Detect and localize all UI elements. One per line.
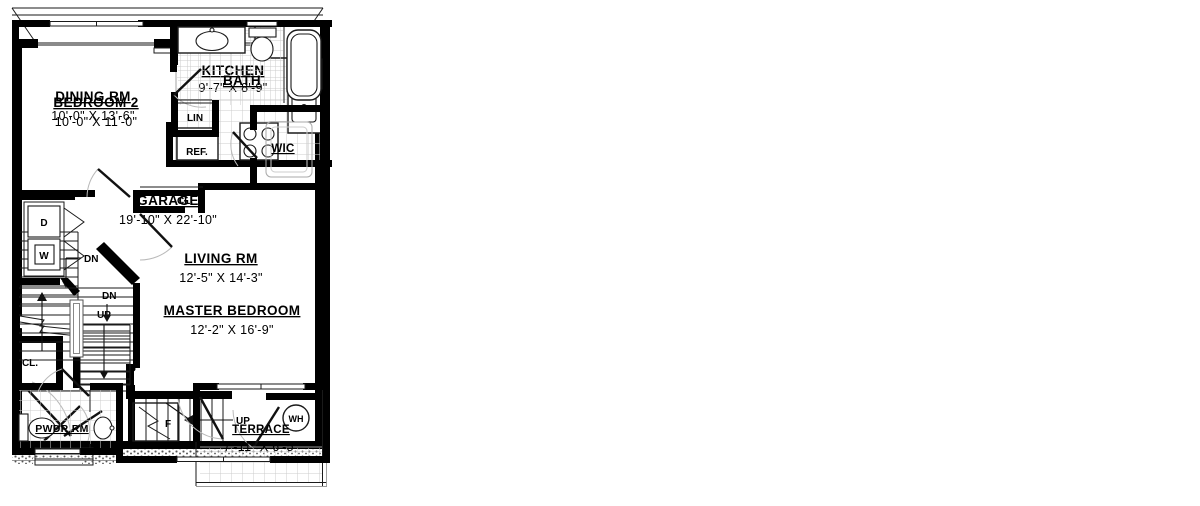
floor-plan-sheet: UP WH GARAGE 19'-10" X 22'-10" [0, 0, 1200, 506]
room-label-pwdr: PWDR RM [35, 423, 88, 435]
room-label-bedroom2: BEDROOM 2 [53, 95, 138, 110]
bath-vanity-sink [178, 27, 245, 53]
closet-label: CL. [177, 196, 193, 207]
bathtub [284, 27, 321, 103]
room-dim-bedroom2: 10'-0" X 11'-0" [55, 115, 138, 129]
upper-level-plan: LIN WIC CL. D W [0, 0, 345, 506]
stairs: DN [19, 288, 133, 360]
room-label-bath: BATH [223, 73, 261, 88]
washer-label: W [39, 251, 49, 262]
dn-label: DN [102, 291, 116, 302]
room-label-master: MASTER BEDROOM [164, 303, 301, 318]
dryer-label: D [40, 218, 47, 229]
laundry: D W [24, 202, 84, 276]
linen-label: LIN [187, 113, 203, 124]
walk-in-closet: WIC [231, 122, 312, 177]
room-label-wic: WIC [271, 143, 294, 155]
master-door [140, 214, 172, 260]
room-dim-master: 12'-2" X 16'-9" [190, 323, 273, 337]
